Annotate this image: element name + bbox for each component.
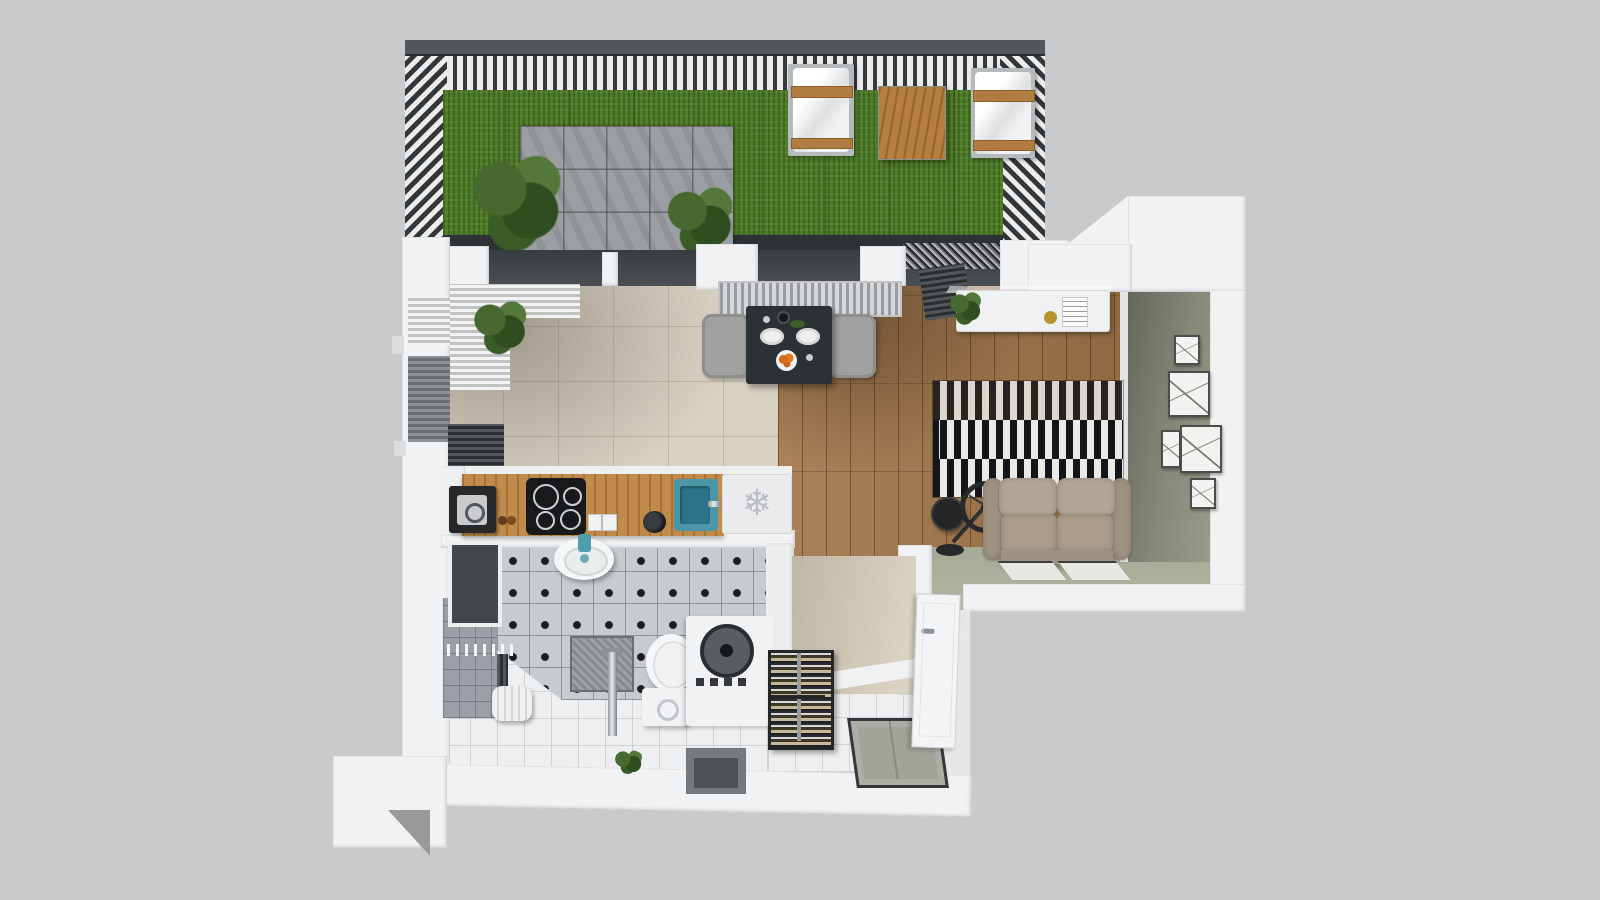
door-panel-line <box>919 603 956 738</box>
lamp-base <box>936 544 964 556</box>
lounge-chair-2 <box>971 68 1035 158</box>
herbs <box>790 320 805 328</box>
left-wall-window <box>408 298 450 346</box>
sink-faucet <box>708 501 721 507</box>
kitchen-sink <box>674 479 718 531</box>
shower-tray <box>570 636 634 692</box>
burner <box>533 484 559 510</box>
sideboard-plant <box>948 290 984 326</box>
glass <box>763 316 770 323</box>
window-sill-tab <box>394 441 406 456</box>
rug-row <box>933 420 1123 459</box>
sofa-back-cushion <box>1057 478 1115 516</box>
storage-jars <box>588 514 617 531</box>
sofa-seat-cushion <box>1001 514 1057 552</box>
dining-chair-right <box>828 314 876 378</box>
dining-chair-left <box>702 314 750 378</box>
left-wall-window <box>408 356 450 442</box>
kettle <box>643 511 666 533</box>
bathroom-niche <box>448 541 502 627</box>
food-plate <box>776 350 797 371</box>
laundry-bin <box>492 686 532 721</box>
pepper-mills <box>498 516 516 525</box>
dining-table <box>746 306 832 384</box>
roof-chunk-diagonal <box>1065 196 1128 246</box>
roof-chunk <box>1128 196 1246 292</box>
niche-opening <box>694 758 738 788</box>
plate <box>796 328 820 345</box>
chair-wood-bar <box>791 138 853 149</box>
sink-basin <box>680 486 710 524</box>
wine-bottle <box>779 313 788 322</box>
sofa-back-cushion <box>999 478 1057 516</box>
floor-plan-render: ❄ <box>0 0 1600 900</box>
coffee-machine <box>449 486 496 533</box>
bathroom-basin <box>554 538 614 580</box>
cooktop <box>526 478 586 535</box>
fridge-top: ❄ <box>722 474 792 534</box>
toilet-cistern <box>642 688 688 726</box>
kitchen-corner-plant <box>470 298 532 356</box>
shower-column <box>608 652 617 736</box>
sideboard-decor-box <box>1062 297 1088 327</box>
bottom-right-wall-band <box>963 584 1246 612</box>
gallery-frame <box>1180 425 1222 473</box>
washer-controls <box>696 678 752 686</box>
rug-row <box>933 381 1123 420</box>
flush-button <box>657 699 679 721</box>
window-sill-tab <box>392 336 404 354</box>
basin-drain <box>580 554 589 563</box>
glass <box>806 354 813 361</box>
wall-pier <box>602 252 618 286</box>
bathroom-plant <box>612 750 646 774</box>
gallery-frame <box>1174 335 1200 365</box>
plate <box>760 328 784 345</box>
shoe-rack-shelf <box>771 695 825 699</box>
chair-wood-bar <box>791 86 853 98</box>
top-right-wall-band <box>1028 244 1132 292</box>
chair-wood-bar <box>973 90 1035 102</box>
sofa <box>983 476 1131 564</box>
pergola-left-slats <box>405 54 447 252</box>
lounge-chair-1 <box>788 64 854 156</box>
sideboard-decor-gold <box>1044 311 1057 324</box>
terrace-table <box>878 86 946 160</box>
doormat-seam <box>889 721 899 779</box>
coffee-machine-dial <box>465 503 485 523</box>
burner <box>536 511 555 530</box>
gallery-frame <box>1190 478 1216 509</box>
wall-pier <box>860 246 906 286</box>
washer-lid-center <box>720 644 733 657</box>
gallery-frame <box>1168 371 1210 417</box>
gallery-frame <box>1161 430 1181 468</box>
fridge-snowflake-icon: ❄ <box>742 483 772 524</box>
burner <box>563 487 582 506</box>
washing-machine <box>686 616 774 726</box>
entry-step-niche <box>686 748 746 794</box>
basin-faucet <box>578 534 591 552</box>
sofa-seat-cushion <box>1057 514 1113 552</box>
entrance-door <box>911 593 960 748</box>
shoe-rack <box>768 650 834 750</box>
chair-wood-bar <box>973 140 1035 151</box>
burner <box>560 509 581 530</box>
kitchen-left-radiator <box>448 424 504 468</box>
terrace-shrub-plant <box>468 148 568 256</box>
pergola-top-rail <box>405 40 1045 56</box>
